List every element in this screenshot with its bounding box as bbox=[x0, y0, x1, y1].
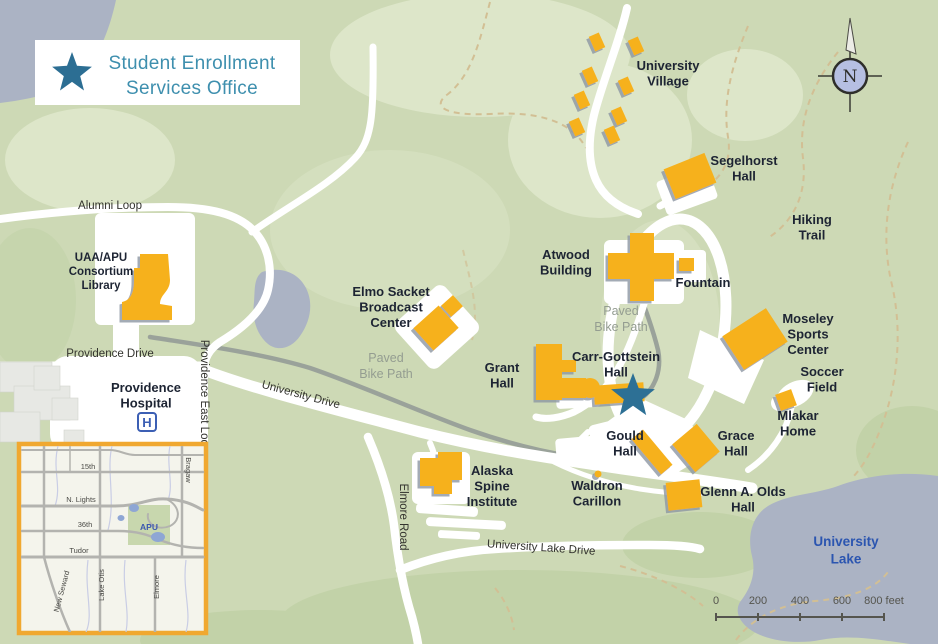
waldron-carillon-marker bbox=[595, 471, 602, 478]
legend: Student Enrollment Services Office bbox=[35, 40, 300, 105]
providence-drive-label: Providence Drive bbox=[66, 348, 154, 360]
elmore-label: Elmore bbox=[152, 575, 161, 599]
inset-map: 15thN. Lights36thTudorAPUBragawNew Sewar… bbox=[19, 444, 206, 633]
building-fountain bbox=[679, 258, 694, 271]
scale-200-label: 200 bbox=[749, 595, 767, 607]
36th-label: 36th bbox=[78, 520, 93, 529]
scale-800-feet-label: 800 feet bbox=[864, 595, 904, 607]
scale-400-label: 400 bbox=[791, 595, 809, 607]
waldron-carillon-label: WaldronCarillon bbox=[571, 478, 623, 509]
n-lights-label: N. Lights bbox=[66, 495, 96, 504]
scale-600-label: 600 bbox=[833, 595, 851, 607]
lake-otis-label: Lake Otis bbox=[97, 569, 106, 601]
tudor-label: Tudor bbox=[69, 546, 89, 555]
alaska-spine-institute-label: AlaskaSpineInstitute bbox=[467, 463, 518, 509]
campus-map: UniversityVillageSegelhorstHallHikingTra… bbox=[0, 0, 938, 644]
alumni-loop-label: Alumni Loop bbox=[78, 200, 142, 212]
elmore-road-label: Elmore Road bbox=[397, 483, 409, 550]
compass-north-label: N bbox=[843, 67, 858, 87]
hospital-icon: H bbox=[138, 413, 156, 431]
map-canvas: UniversityVillageSegelhorstHallHikingTra… bbox=[0, 0, 938, 644]
legend-line2: Services Office bbox=[126, 78, 258, 99]
apu-label: APU bbox=[140, 522, 158, 532]
bragaw-label: Bragaw bbox=[184, 457, 193, 483]
15th-label: 15th bbox=[81, 462, 96, 471]
moseley-sports-center-label: MoseleySportsCenter bbox=[782, 311, 834, 357]
mlakar-home-label: MlakarHome bbox=[777, 408, 818, 439]
providence-hospital-label: ProvidenceHospital bbox=[111, 380, 181, 411]
legend-line1: Student Enrollment bbox=[109, 53, 276, 74]
providence-east-loop-label: Providence East Loop bbox=[198, 340, 210, 453]
hospital-icon-letter: H bbox=[142, 415, 151, 430]
scale-0-label: 0 bbox=[713, 595, 719, 607]
fountain-label: Fountain bbox=[676, 275, 731, 290]
atwood-building-label: AtwoodBuilding bbox=[540, 247, 592, 278]
building-glenn-olds bbox=[666, 479, 703, 510]
